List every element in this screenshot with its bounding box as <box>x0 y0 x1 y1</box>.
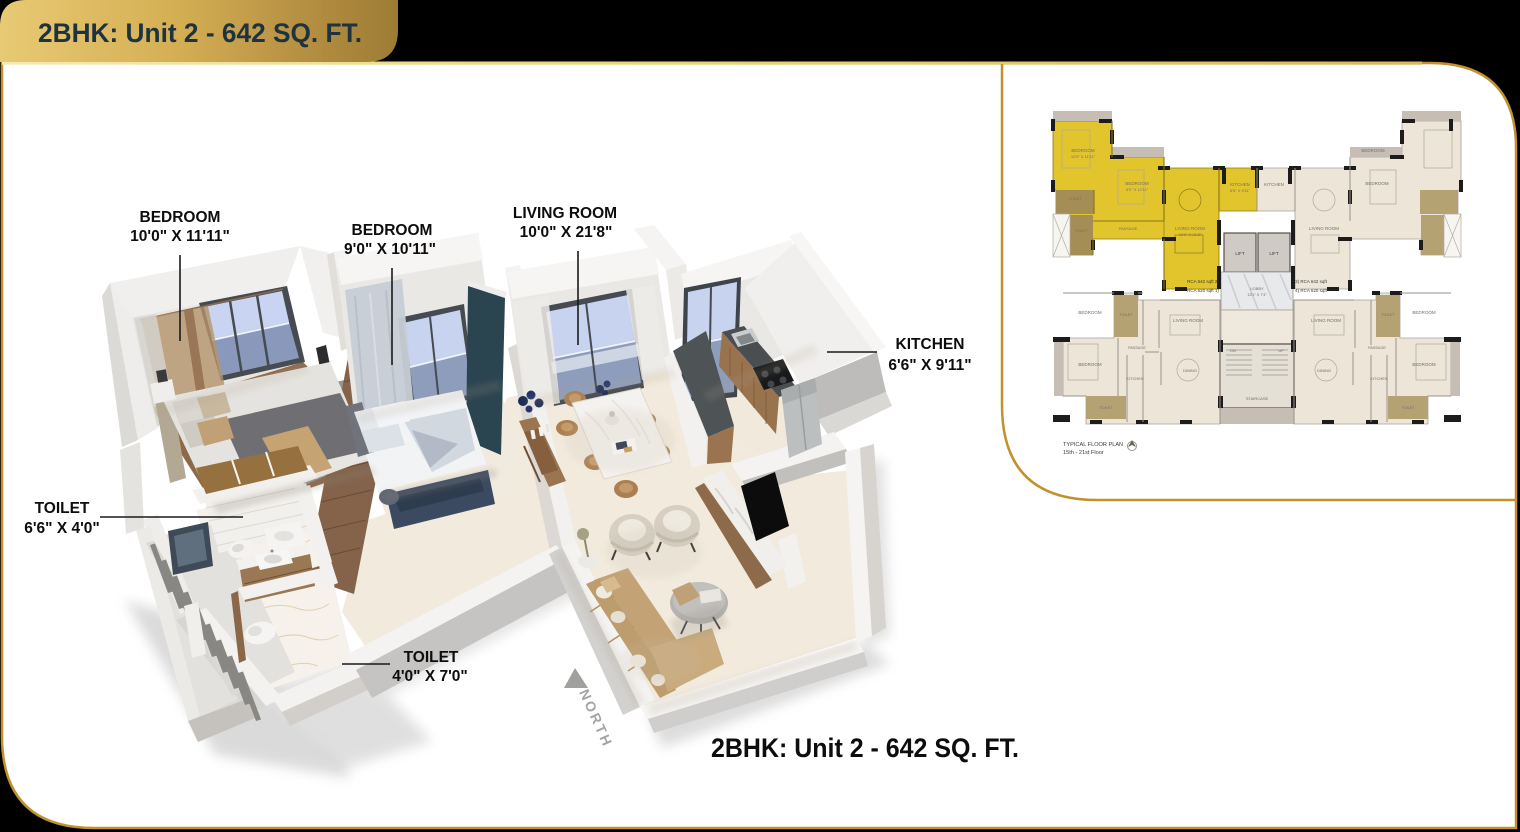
svg-text:4) RCA 620 sqft: 4) RCA 620 sqft <box>1295 288 1328 293</box>
svg-text:TOILET: TOILET <box>1401 406 1415 410</box>
svg-text:KITCHEN: KITCHEN <box>1370 376 1388 381</box>
svg-text:13'1" X 7'4": 13'1" X 7'4" <box>1247 293 1267 297</box>
svg-text:LIFT: LIFT <box>1269 251 1279 256</box>
svg-text:TOILET: TOILET <box>1099 406 1113 410</box>
svg-text:TOILET: TOILET <box>35 500 90 517</box>
svg-text:9'0" X 12'11": 9'0" X 12'11" <box>1126 187 1149 192</box>
svg-text:9'0" X 10'11": 9'0" X 10'11" <box>344 241 436 258</box>
svg-text:LOBBY: LOBBY <box>1250 286 1264 291</box>
svg-text:4'0" X 7'0": 4'0" X 7'0" <box>392 668 468 685</box>
svg-text:TOILET: TOILET <box>1119 313 1133 317</box>
svg-text:BEDROOM: BEDROOM <box>1078 362 1102 367</box>
svg-text:KITCHEN: KITCHEN <box>896 336 965 353</box>
svg-text:BEDROOM: BEDROOM <box>1365 181 1389 186</box>
svg-text:10'0" X 11'11": 10'0" X 11'11" <box>130 228 230 245</box>
svg-text:TOILET: TOILET <box>1068 197 1082 201</box>
svg-text:LIVING ROOM: LIVING ROOM <box>1311 318 1341 323</box>
svg-text:KITCHEN: KITCHEN <box>1126 376 1144 381</box>
svg-text:10'0" X 11'11": 10'0" X 11'11" <box>1071 154 1096 159</box>
svg-text:KITCHEN: KITCHEN <box>1230 182 1250 187</box>
svg-text:LIVING ROOM: LIVING ROOM <box>1309 226 1339 231</box>
svg-text:2BHK: Unit 2 - 642 SQ. FT.: 2BHK: Unit 2 - 642 SQ. FT. <box>38 18 362 48</box>
svg-text:3) RCA 642 sqft: 3) RCA 642 sqft <box>1295 279 1328 284</box>
svg-text:BEDROOM: BEDROOM <box>352 222 433 239</box>
svg-text:BEDROOM: BEDROOM <box>1071 148 1095 153</box>
svg-text:PASSAGE: PASSAGE <box>1119 226 1138 231</box>
svg-text:6'6" X 9'11": 6'6" X 9'11" <box>1230 188 1251 193</box>
svg-text:15th - 21st Floor: 15th - 21st Floor <box>1063 450 1104 456</box>
svg-text:6'6" X 4'0": 6'6" X 4'0" <box>24 520 100 537</box>
svg-text:TOILET: TOILET <box>1074 229 1088 233</box>
svg-text:10'0" X 21'8": 10'0" X 21'8" <box>520 224 613 241</box>
svg-text:LIFT: LIFT <box>1235 251 1245 256</box>
svg-text:STAIRCASE: STAIRCASE <box>1246 396 1269 401</box>
svg-text:PASSAGE: PASSAGE <box>1368 346 1386 350</box>
svg-text:BEDROOM: BEDROOM <box>140 209 221 226</box>
svg-text:TOILET: TOILET <box>1381 313 1395 317</box>
svg-text:DINING: DINING <box>1317 368 1331 373</box>
svg-text:6'6" X 9'11": 6'6" X 9'11" <box>888 357 971 374</box>
svg-text:BEDROOM: BEDROOM <box>1078 310 1102 315</box>
svg-text:BEDROOM: BEDROOM <box>1412 362 1436 367</box>
svg-text:KITCHEN: KITCHEN <box>1264 182 1284 187</box>
svg-text:TYPICAL FLOOR PLAN: TYPICAL FLOOR PLAN <box>1063 442 1123 448</box>
svg-text:2BHK: Unit 2 - 642 SQ. FT.: 2BHK: Unit 2 - 642 SQ. FT. <box>711 733 1019 763</box>
svg-text:PASSAGE: PASSAGE <box>1128 346 1146 350</box>
svg-text:RCA 620 sqft 1): RCA 620 sqft 1) <box>1187 288 1219 293</box>
svg-text:BEDROOM: BEDROOM <box>1361 148 1385 153</box>
svg-text:TOILET: TOILET <box>404 649 459 666</box>
svg-text:LIVING ROOM: LIVING ROOM <box>1175 226 1205 231</box>
svg-text:UP: UP <box>1278 349 1284 353</box>
svg-text:LIVING ROOM: LIVING ROOM <box>513 205 617 222</box>
svg-text:BEDROOM: BEDROOM <box>1412 310 1436 315</box>
svg-text:RCA 642 sqft 2): RCA 642 sqft 2) <box>1187 279 1219 284</box>
svg-text:DN: DN <box>1230 349 1236 353</box>
svg-text:10'0" X 21'8": 10'0" X 21'8" <box>1179 232 1202 237</box>
svg-text:DINING: DINING <box>1183 368 1197 373</box>
svg-text:LIVING ROOM: LIVING ROOM <box>1173 318 1203 323</box>
svg-text:BEDROOM: BEDROOM <box>1125 181 1149 186</box>
